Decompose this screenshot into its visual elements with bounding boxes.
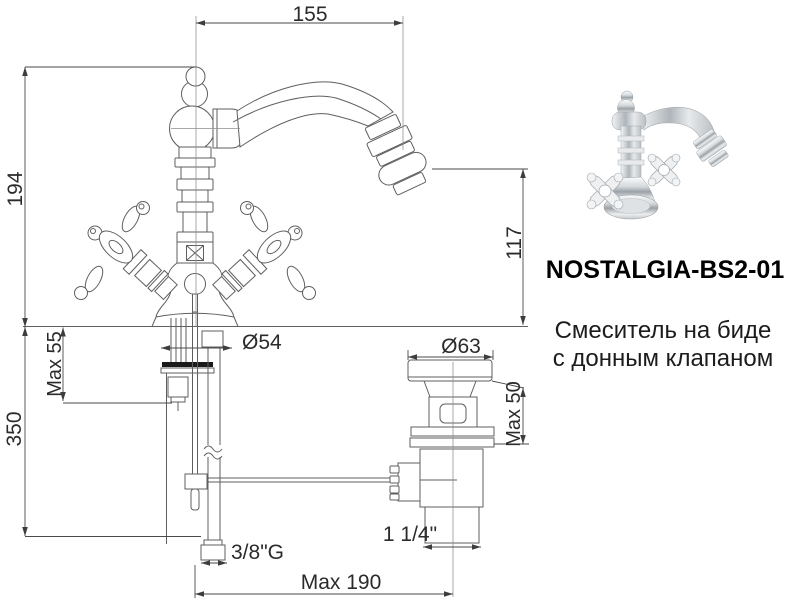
product-description-line1: Смеситель на биде <box>528 317 785 345</box>
dim-spout-reach: 155 <box>196 3 403 26</box>
faucet-square-section <box>177 242 213 263</box>
dim-supply-length-label: 350 <box>3 411 26 446</box>
washer <box>161 368 214 373</box>
drain-lock-ring-2 <box>410 438 494 447</box>
rod-adjuster-knob <box>398 463 420 501</box>
technical-datasheet: 155 194 350 Max 55 Ø54 117 <box>0 0 785 610</box>
dim-drain-max-thickness: Max 50 <box>492 381 529 447</box>
drain-lower-body <box>420 449 483 507</box>
lift-rod-knob <box>185 274 206 295</box>
dim-drain-flange-diameter-label: Ø63 <box>441 335 481 358</box>
drain-flange <box>408 360 492 381</box>
left-cross-handle <box>75 202 178 300</box>
dim-max-mount-thickness-label: Max 55 <box>44 331 66 397</box>
dim-max-horizontal-reach: Max 190 <box>195 565 453 598</box>
product-code: NOSTALGIA-BS2-01 <box>540 256 785 285</box>
faucet-pedestal <box>152 313 238 326</box>
rod-clamp <box>185 474 207 489</box>
dim-base-diameter-label: Ø54 <box>242 331 282 354</box>
lift-rod-tip <box>191 489 199 510</box>
faucet-finial-ball-small <box>186 67 205 86</box>
dim-spout-height: 117 <box>432 169 528 325</box>
shank-nut <box>202 331 223 347</box>
dim-spout-height-label: 117 <box>503 226 526 259</box>
dim-drain-flange-diameter: Ø63 <box>408 335 493 360</box>
product-photo <box>587 91 733 219</box>
lift-rod-stem <box>193 294 198 312</box>
dim-drain-max-thickness-label: Max 50 <box>503 381 525 447</box>
drain-valve-side-view <box>390 360 494 543</box>
dim-max-horizontal-reach-label: Max 190 <box>301 571 382 594</box>
drawing-canvas: 155 194 350 Max 55 Ø54 117 <box>0 0 785 610</box>
dim-max-mount-thickness: Max 55 <box>44 328 172 404</box>
faucet-front-view <box>75 67 435 327</box>
dim-supply-thread-label: 3/8"G <box>231 541 284 564</box>
product-description: Смеситель на биде с донным клапаном <box>528 317 785 373</box>
rubber-gasket <box>162 362 213 367</box>
right-cross-handle <box>213 202 316 300</box>
fixing-nut <box>168 377 188 397</box>
dim-spout-reach-label: 155 <box>292 3 327 26</box>
drain-lock-ring-1 <box>411 427 494 436</box>
dim-body-height-label: 194 <box>4 171 27 206</box>
supply-connection-nut <box>201 545 225 560</box>
dim-drain-thread-label: 1 1/4" <box>383 523 437 546</box>
product-description-line2: с донным клапаном <box>528 345 785 373</box>
faucet-column <box>175 147 215 242</box>
